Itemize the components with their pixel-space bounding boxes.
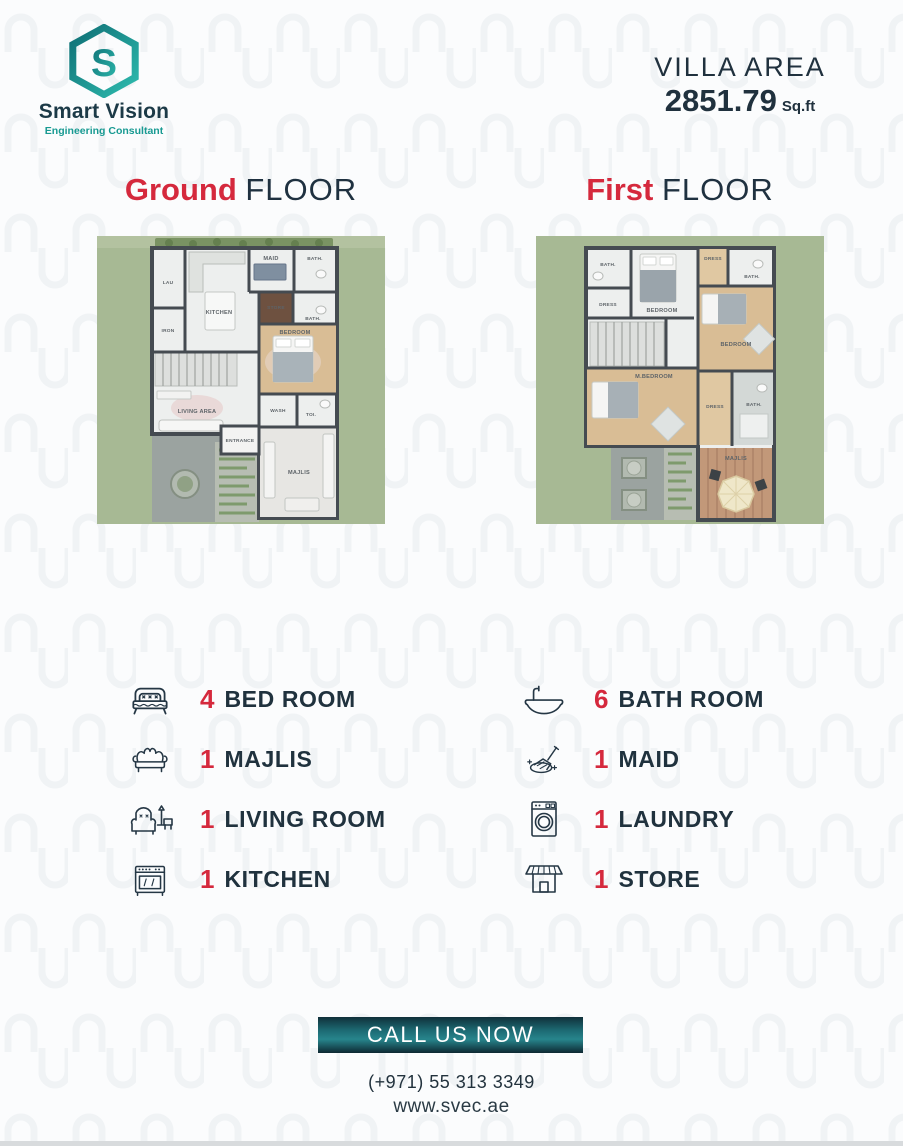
phone-number: (+971) 55 313 3349 [0, 1072, 903, 1093]
amenity-bedrooms: 4 BED ROOM [118, 671, 448, 727]
amenity-count: 1 [594, 744, 608, 775]
room-label: BEDROOM [280, 330, 311, 336]
stove-icon [118, 851, 182, 907]
room-label: IRON [162, 328, 175, 334]
flyer-page: S Smart Vision Engineering Consultant VI… [0, 0, 903, 1146]
room-label: BATH. [744, 274, 760, 280]
storefront-icon [512, 851, 576, 907]
amenity-majlis: 1 MAJLIS [118, 731, 448, 787]
room-label: TOI. [306, 412, 316, 418]
amenity-label: STORE [618, 866, 700, 893]
logo-letter: S [91, 42, 117, 85]
amenity-store: 1 STORE [512, 851, 842, 907]
armchair-icon [118, 791, 182, 847]
room-label: BATH. [307, 256, 323, 262]
brand-tagline: Engineering Consultant [38, 125, 170, 137]
first-floor-title-accent: First [586, 172, 653, 207]
bottom-divider [0, 1141, 903, 1146]
amenity-count: 6 [594, 684, 608, 715]
room-label: LIVING AREA [178, 409, 217, 415]
amenity-label: LIVING ROOM [224, 806, 385, 833]
amenity-maid: 1 MAID [512, 731, 842, 787]
room-label: MAID [263, 256, 278, 262]
amenity-kitchen: 1 KITCHEN [118, 851, 448, 907]
ground-floor-title: Ground FLOOR [97, 172, 385, 208]
room-label: DRESS [704, 256, 722, 262]
sofa-icon [118, 731, 182, 787]
brand-name: Smart Vision [38, 100, 170, 124]
bathtub-icon [512, 671, 576, 727]
room-label: DRESS [599, 302, 617, 308]
villa-area-block: VILLA AREA 2851.79Sq.ft [595, 52, 885, 119]
bed-icon [118, 671, 182, 727]
room-label: BATH. [746, 402, 762, 408]
room-label: BEDROOM [721, 342, 752, 348]
room-label: DRESS [706, 404, 724, 410]
amenity-count: 1 [200, 744, 214, 775]
ground-floor-plan: LAU IRON KITCHEN MAID BATH. STORE BATH. … [97, 236, 385, 524]
first-floor-title: First FLOOR [536, 172, 824, 208]
amenity-label: BATH ROOM [618, 686, 764, 713]
room-label: KITCHEN [206, 310, 233, 316]
call-us-now-button[interactable]: CALL US NOW [318, 1017, 583, 1053]
first-floor-title-rest: FLOOR [662, 172, 774, 207]
first-floor-plan: BATH. DRESS BEDROOM DRESS BATH. BEDROOM … [536, 236, 824, 524]
smart-vision-logo: S Smart Vision Engineering Consultant [38, 24, 170, 137]
room-label: BEDROOM [647, 308, 678, 314]
washing-machine-icon [512, 791, 576, 847]
cleaning-icon [512, 731, 576, 787]
room-label: M.BEDROOM [635, 374, 673, 380]
ground-floor-title-accent: Ground [125, 172, 237, 207]
amenity-laundry: 1 LAUNDRY [512, 791, 842, 847]
room-label: WASH [270, 408, 286, 414]
hexagon-s-logo-icon: S [65, 24, 143, 98]
room-label: STORE [267, 305, 285, 311]
room-label: MAJLIS [725, 456, 747, 462]
amenity-count: 1 [594, 804, 608, 835]
amenity-label: LAUNDRY [618, 806, 734, 833]
amenity-label: KITCHEN [224, 866, 330, 893]
villa-area-unit: Sq.ft [782, 98, 815, 115]
amenity-count: 1 [200, 864, 214, 895]
ground-floor-title-rest: FLOOR [245, 172, 357, 207]
room-label: BATH. [600, 262, 616, 268]
amenity-count: 1 [200, 804, 214, 835]
amenity-label: MAJLIS [224, 746, 312, 773]
villa-area-value: 2851.79 [665, 83, 777, 118]
room-label: BATH. [305, 316, 321, 322]
villa-area-label: VILLA AREA [595, 52, 885, 83]
room-label: ENTRANCE [226, 438, 255, 444]
amenity-bathrooms: 6 BATH ROOM [512, 671, 842, 727]
amenity-count: 4 [200, 684, 214, 715]
room-label: MAJLIS [288, 470, 310, 476]
room-label: LAU [163, 280, 174, 286]
amenity-living-room: 1 LIVING ROOM [118, 791, 448, 847]
amenity-count: 1 [594, 864, 608, 895]
amenity-label: BED ROOM [224, 686, 355, 713]
website-link[interactable]: www.svec.ae [0, 1096, 903, 1118]
amenity-label: MAID [618, 746, 679, 773]
